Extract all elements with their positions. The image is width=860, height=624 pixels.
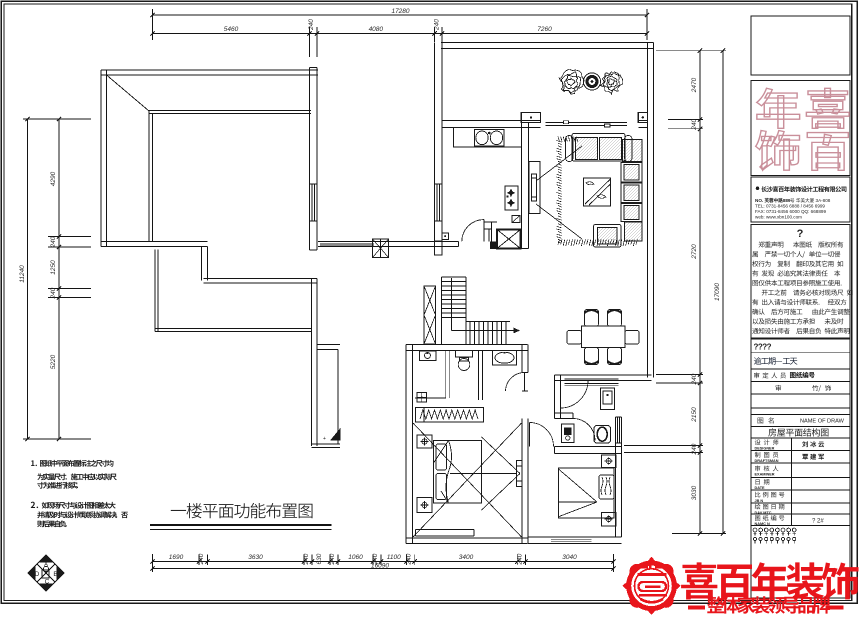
svg-text:3030: 3030 xyxy=(691,485,698,500)
svg-text:16090: 16090 xyxy=(371,562,389,569)
svg-text:3400: 3400 xyxy=(459,554,474,561)
svg-text:3630: 3630 xyxy=(248,554,263,561)
svg-text:DATE: DATE xyxy=(755,486,766,490)
svg-text:C: C xyxy=(45,579,50,586)
svg-text:7260: 7260 xyxy=(537,26,552,33)
svg-text:FAX: 0731-8456 6000 QQ: 66889: FAX: 0731-8456 6000 QQ: 668899 xyxy=(755,209,826,214)
svg-text:TEL: 0731-8456 6888 / 8456 699: TEL: 0731-8456 6888 / 8456 6999 xyxy=(755,204,825,209)
svg-text:240: 240 xyxy=(433,19,440,31)
svg-text:2150: 2150 xyxy=(691,407,698,423)
svg-text:1250: 1250 xyxy=(50,260,57,275)
svg-text:1690: 1690 xyxy=(169,554,184,561)
svg-text:5220: 5220 xyxy=(50,354,57,369)
svg-text:D: D xyxy=(35,571,40,578)
svg-text:240: 240 xyxy=(691,443,698,455)
svg-text:17280: 17280 xyxy=(391,8,409,15)
svg-text:web: www.xbn100.com: web: www.xbn100.com xyxy=(755,215,802,220)
svg-text:DESIGNER: DESIGNER xyxy=(755,446,775,450)
svg-text:240: 240 xyxy=(516,553,523,565)
svg-text:4080: 4080 xyxy=(369,26,384,33)
svg-text:NAMC N: NAMC N xyxy=(755,522,770,526)
svg-text:????: ???? xyxy=(754,343,772,352)
svg-text:240: 240 xyxy=(198,553,205,565)
svg-text:4290: 4290 xyxy=(50,171,57,186)
svg-text:630: 630 xyxy=(316,553,323,564)
svg-text:240: 240 xyxy=(308,19,315,31)
svg-text:B: B xyxy=(53,571,57,578)
svg-text:3040: 3040 xyxy=(562,554,577,561)
svg-text:A: A xyxy=(44,563,48,569)
svg-text:2720: 2720 xyxy=(691,244,698,260)
svg-text:240: 240 xyxy=(50,287,57,299)
svg-text:240: 240 xyxy=(303,553,310,565)
svg-text:DAV MTC: DAV MTC xyxy=(755,511,772,515)
svg-text:JB N: JB N xyxy=(755,499,764,503)
svg-text:DRAFTSMAN: DRAFTSMAN xyxy=(755,459,779,463)
svg-text:2470: 2470 xyxy=(691,77,698,93)
svg-text:11240: 11240 xyxy=(19,265,26,283)
svg-text:1060: 1060 xyxy=(348,554,363,561)
svg-text:240: 240 xyxy=(50,236,57,248)
svg-text:5460: 5460 xyxy=(224,26,239,33)
svg-text:NAME OF DRAW: NAME OF DRAW xyxy=(800,419,845,425)
svg-text:240: 240 xyxy=(691,118,698,130)
svg-text:EXAMINER: EXAMINER xyxy=(755,473,775,477)
svg-text:17090: 17090 xyxy=(714,283,721,301)
svg-text:1100: 1100 xyxy=(387,554,401,561)
svg-text:240: 240 xyxy=(406,553,413,565)
svg-text:+: + xyxy=(323,436,326,442)
svg-text:240: 240 xyxy=(329,553,336,565)
svg-text:240: 240 xyxy=(691,373,698,385)
svg-text:?: ? xyxy=(797,228,804,240)
svg-text:? 2#: ? 2# xyxy=(812,519,824,525)
